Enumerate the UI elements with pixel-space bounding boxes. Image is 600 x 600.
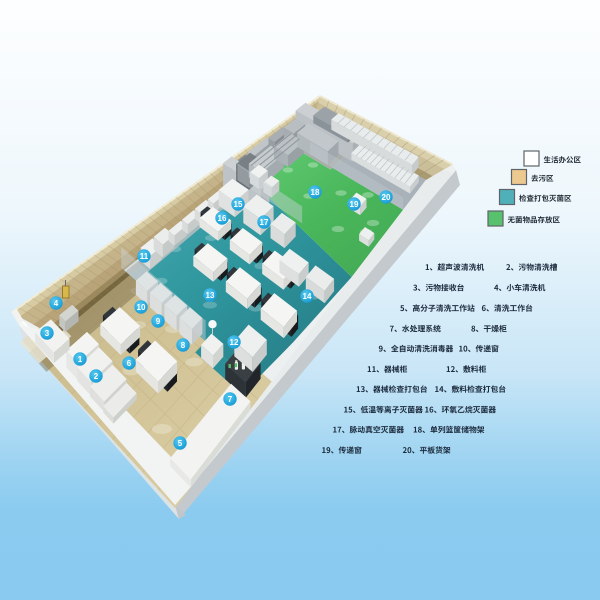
svg-text:17: 17 (260, 218, 269, 227)
svg-text:7: 7 (228, 395, 233, 404)
svg-text:5: 5 (178, 439, 183, 448)
svg-text:10: 10 (137, 303, 146, 312)
svg-text:20: 20 (382, 193, 391, 202)
svg-text:6: 6 (127, 359, 132, 368)
svg-text:4: 4 (54, 299, 59, 308)
svg-text:19: 19 (350, 200, 359, 209)
svg-text:3: 3 (45, 329, 50, 338)
svg-text:1: 1 (78, 355, 83, 364)
svg-text:2: 2 (94, 372, 99, 381)
svg-text:8: 8 (181, 341, 186, 350)
svg-text:9: 9 (156, 317, 161, 326)
svg-text:14: 14 (303, 292, 312, 301)
svg-text:12: 12 (230, 338, 239, 347)
svg-text:18: 18 (311, 188, 320, 197)
svg-text:16: 16 (218, 214, 227, 223)
svg-text:15: 15 (234, 200, 243, 209)
svg-text:13: 13 (206, 291, 215, 300)
svg-text:11: 11 (140, 252, 149, 261)
